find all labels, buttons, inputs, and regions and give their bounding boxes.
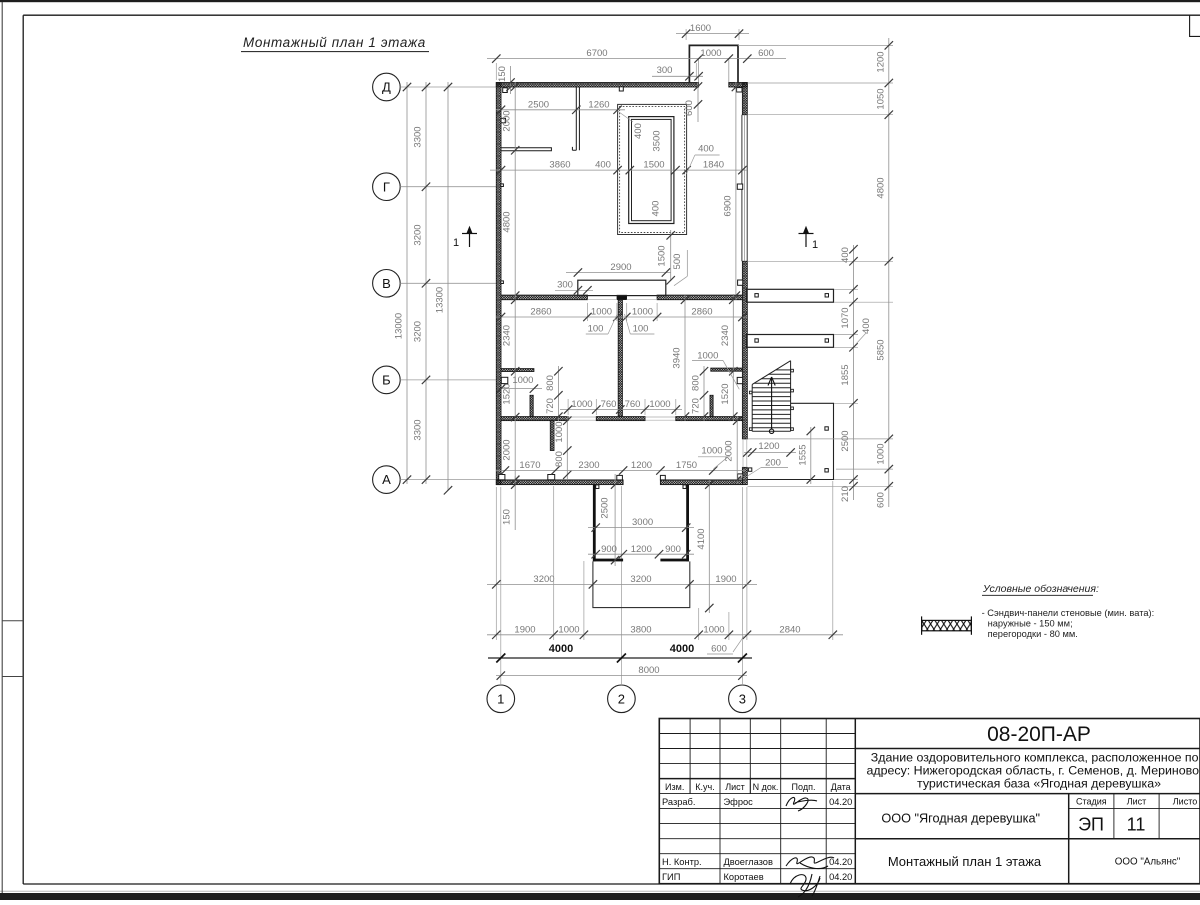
svg-text:В: В: [382, 276, 391, 291]
svg-text:1000: 1000: [649, 399, 670, 410]
svg-text:1000: 1000: [558, 624, 579, 635]
svg-text:6900: 6900: [722, 195, 733, 216]
svg-text:1840: 1840: [703, 160, 724, 171]
svg-text:2: 2: [618, 691, 625, 706]
svg-text:400: 400: [861, 318, 872, 334]
svg-text:Лист: Лист: [1127, 797, 1147, 807]
svg-text:адресу: Нижегородская область,: адресу: Нижегородская область, г. Семено…: [867, 763, 1200, 777]
svg-text:1000: 1000: [632, 307, 653, 318]
svg-text:2300: 2300: [578, 460, 599, 471]
svg-text:наружные - 150 мм;: наружные - 150 мм;: [988, 618, 1073, 628]
svg-text:900: 900: [665, 544, 681, 555]
svg-text:1555: 1555: [797, 444, 808, 465]
svg-text:1000: 1000: [591, 307, 612, 318]
svg-text:800: 800: [545, 375, 556, 391]
svg-text:4800: 4800: [502, 211, 513, 232]
svg-text:Подп.: Подп.: [792, 782, 816, 792]
svg-text:300: 300: [657, 65, 673, 76]
svg-text:1000: 1000: [697, 351, 718, 362]
svg-text:760: 760: [625, 399, 641, 410]
svg-text:1200: 1200: [758, 441, 779, 452]
svg-text:3200: 3200: [413, 321, 424, 342]
svg-text:2340: 2340: [720, 325, 731, 346]
svg-text:5850: 5850: [875, 339, 886, 360]
svg-text:2000: 2000: [502, 439, 513, 460]
svg-text:600: 600: [684, 100, 695, 116]
svg-text:100: 100: [633, 324, 649, 335]
svg-text:4000: 4000: [549, 643, 573, 655]
svg-text:400: 400: [840, 247, 851, 263]
svg-text:720: 720: [691, 398, 702, 414]
svg-text:800: 800: [691, 375, 702, 391]
svg-text:13300: 13300: [435, 287, 446, 313]
svg-text:1: 1: [453, 237, 459, 249]
svg-text:3300: 3300: [413, 126, 424, 147]
svg-text:08-20П-АР: 08-20П-АР: [987, 723, 1091, 746]
svg-text:200: 200: [765, 458, 781, 469]
svg-text:2860: 2860: [530, 307, 551, 318]
svg-text:перегородки - 80 мм.: перегородки - 80 мм.: [988, 629, 1078, 639]
svg-text:500: 500: [672, 254, 683, 270]
svg-text:2500: 2500: [528, 99, 549, 110]
svg-text:4100: 4100: [696, 528, 707, 549]
svg-text:Здание оздоровительного компле: Здание оздоровительного комплекса, распо…: [871, 751, 1199, 765]
svg-text:900: 900: [601, 544, 617, 555]
svg-text:1000: 1000: [703, 624, 724, 635]
svg-text:Коротаев: Коротаев: [724, 872, 764, 882]
svg-text:1000: 1000: [554, 421, 565, 442]
svg-text:1855: 1855: [840, 364, 851, 385]
svg-text:3000: 3000: [632, 517, 653, 528]
svg-text:2000: 2000: [502, 110, 513, 131]
svg-text:3200: 3200: [533, 574, 554, 585]
svg-text:1000: 1000: [512, 375, 533, 386]
svg-text:туристическая база «Ягодная де: туристическая база «Ягодная деревушка»: [917, 776, 1161, 790]
svg-text:1000: 1000: [571, 399, 592, 410]
svg-text:Условные обозначения:: Условные обозначения:: [982, 583, 1099, 595]
svg-text:1520: 1520: [720, 383, 731, 404]
svg-text:04.20: 04.20: [829, 872, 852, 882]
svg-text:1900: 1900: [715, 574, 736, 585]
svg-text:720: 720: [545, 398, 556, 414]
svg-text:Лист: Лист: [725, 782, 745, 792]
svg-text:3: 3: [739, 691, 746, 706]
svg-text:ЭП: ЭП: [1078, 815, 1104, 835]
svg-text:2840: 2840: [779, 624, 800, 635]
svg-text:210: 210: [840, 486, 851, 502]
svg-text:Эфрос: Эфрос: [724, 797, 754, 807]
svg-text:4800: 4800: [875, 177, 886, 198]
svg-text:Дата: Дата: [831, 782, 851, 792]
svg-text:2500: 2500: [600, 497, 611, 518]
svg-text:1500: 1500: [643, 160, 664, 171]
svg-text:1050: 1050: [875, 88, 886, 109]
svg-text:600: 600: [711, 644, 727, 655]
svg-text:6700: 6700: [586, 48, 607, 59]
svg-text:400: 400: [698, 144, 714, 155]
svg-text:1200: 1200: [631, 544, 652, 555]
svg-text:8000: 8000: [638, 665, 659, 676]
svg-text:Стадия: Стадия: [1076, 797, 1107, 807]
svg-text:150: 150: [502, 509, 513, 525]
svg-text:1000: 1000: [701, 446, 722, 457]
svg-text:13000: 13000: [394, 313, 405, 339]
svg-text:А: А: [382, 472, 391, 487]
svg-text:1750: 1750: [676, 460, 697, 471]
svg-text:300: 300: [557, 280, 573, 291]
svg-text:1670: 1670: [519, 460, 540, 471]
svg-text:1070: 1070: [840, 307, 851, 328]
svg-text:1260: 1260: [588, 99, 609, 110]
svg-text:3200: 3200: [630, 574, 651, 585]
svg-text:Н. Контр.: Н. Контр.: [662, 857, 702, 867]
svg-text:Листо: Листо: [1173, 797, 1197, 807]
svg-text:2000: 2000: [724, 440, 735, 461]
svg-text:150: 150: [497, 66, 508, 82]
svg-text:3860: 3860: [549, 160, 570, 171]
svg-text:Монтажный план 1 этажа: Монтажный план 1 этажа: [888, 854, 1042, 869]
svg-text:2500: 2500: [840, 430, 851, 451]
svg-text:1900: 1900: [514, 624, 535, 635]
svg-text:400: 400: [651, 201, 662, 217]
svg-text:800: 800: [554, 451, 565, 467]
svg-text:100: 100: [588, 324, 604, 335]
svg-text:400: 400: [595, 160, 611, 171]
svg-text:2900: 2900: [610, 262, 631, 273]
svg-text:1500: 1500: [657, 245, 668, 266]
svg-text:1: 1: [812, 239, 818, 251]
svg-text:Д: Д: [382, 80, 391, 95]
svg-text:К.уч.: К.уч.: [695, 782, 714, 792]
svg-text:Монтажный план 1 этажа: Монтажный план 1 этажа: [243, 35, 426, 50]
svg-text:2340: 2340: [502, 325, 513, 346]
svg-text:- Сэндвич-панели стеновые (мин: - Сэндвич-панели стеновые (мин. вата):: [982, 608, 1155, 618]
svg-text:ГИП: ГИП: [662, 872, 680, 882]
svg-text:400: 400: [633, 123, 644, 139]
svg-text:1: 1: [497, 691, 504, 706]
svg-text:3500: 3500: [652, 130, 663, 151]
svg-text:N док.: N док.: [753, 782, 779, 792]
svg-text:4000: 4000: [670, 643, 694, 655]
svg-text:3940: 3940: [672, 347, 683, 368]
svg-text:3300: 3300: [413, 419, 424, 440]
svg-text:1600: 1600: [690, 23, 711, 34]
svg-text:1200: 1200: [875, 51, 886, 72]
svg-text:04.20: 04.20: [829, 797, 852, 807]
svg-text:600: 600: [875, 492, 886, 508]
svg-text:ООО "Ягодная деревушка": ООО "Ягодная деревушка": [881, 812, 1040, 826]
svg-text:Б: Б: [382, 373, 391, 388]
svg-text:760: 760: [601, 399, 617, 410]
svg-text:11: 11: [1127, 815, 1146, 835]
svg-text:2860: 2860: [691, 307, 712, 318]
svg-text:3200: 3200: [413, 224, 424, 245]
svg-text:Двоеглазов: Двоеглазов: [724, 857, 773, 867]
svg-text:Г: Г: [383, 179, 390, 194]
svg-text:Разраб.: Разраб.: [662, 797, 695, 807]
svg-text:1000: 1000: [700, 48, 721, 59]
svg-text:600: 600: [758, 48, 774, 59]
svg-text:ООО "Альянс": ООО "Альянс": [1115, 856, 1181, 867]
svg-text:1200: 1200: [631, 460, 652, 471]
svg-text:3800: 3800: [630, 624, 651, 635]
svg-text:04.20: 04.20: [829, 857, 852, 867]
svg-text:Изм.: Изм.: [665, 782, 684, 792]
svg-text:1000: 1000: [875, 443, 886, 464]
